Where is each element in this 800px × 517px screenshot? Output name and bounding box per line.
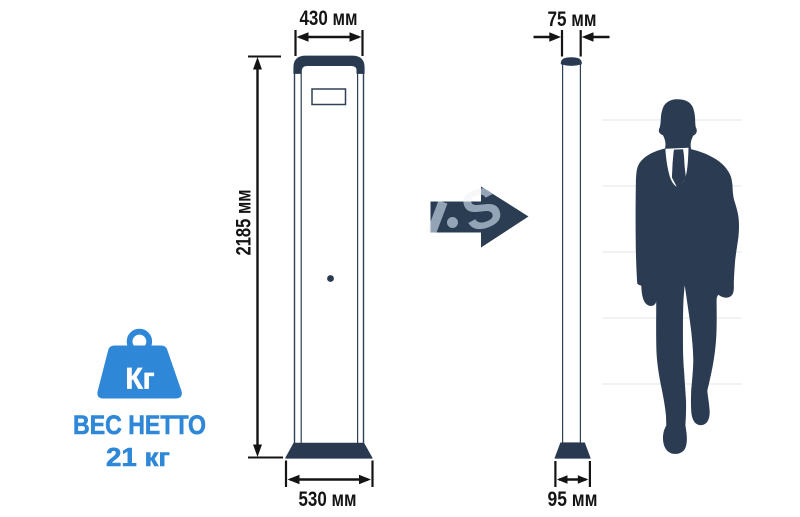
svg-text:2185 мм: 2185 мм bbox=[233, 190, 256, 256]
svg-text:75 мм: 75 мм bbox=[548, 8, 597, 31]
svg-text:Кг: Кг bbox=[126, 363, 155, 396]
svg-text:21 кг: 21 кг bbox=[106, 442, 170, 472]
svg-text:430 мм: 430 мм bbox=[300, 7, 358, 30]
svg-text:ВЕС НЕТТО: ВЕС НЕТТО bbox=[73, 410, 206, 440]
svg-text:530 мм: 530 мм bbox=[299, 488, 357, 511]
svg-text:95 мм: 95 мм bbox=[548, 488, 598, 511]
